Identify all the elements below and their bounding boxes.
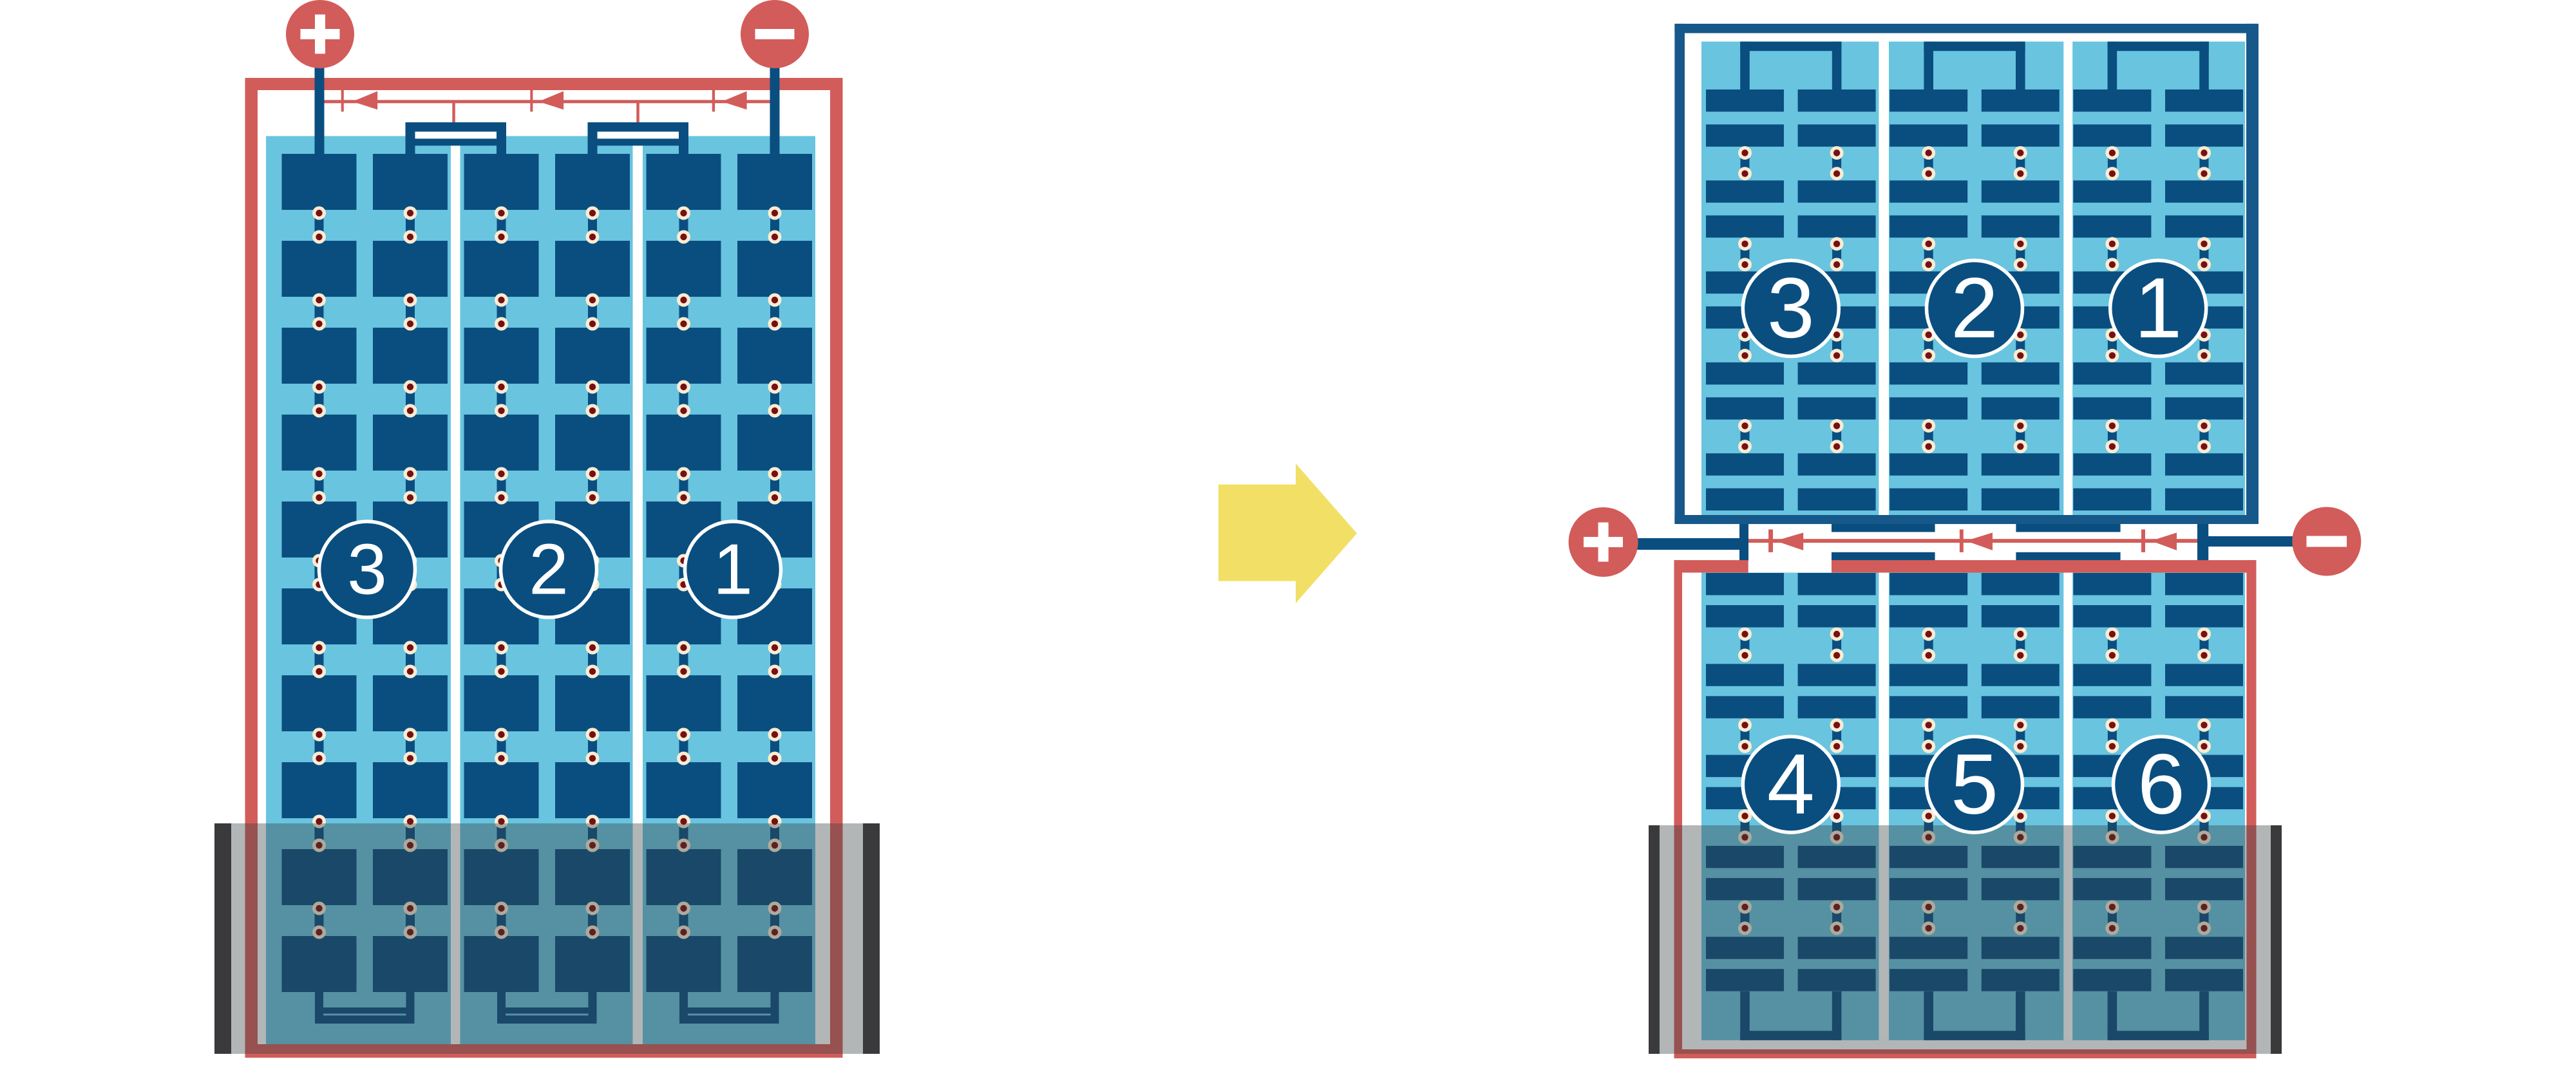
svg-text:2: 2 [529,530,569,610]
svg-text:5: 5 [1951,737,1998,832]
svg-text:4: 4 [1767,737,1815,832]
svg-text:1: 1 [713,530,753,610]
svg-text:1: 1 [2134,261,2182,356]
svg-text:3: 3 [1767,261,1815,356]
svg-text:2: 2 [1951,261,1998,356]
svg-text:6: 6 [2137,737,2185,832]
svg-text:3: 3 [347,530,387,610]
